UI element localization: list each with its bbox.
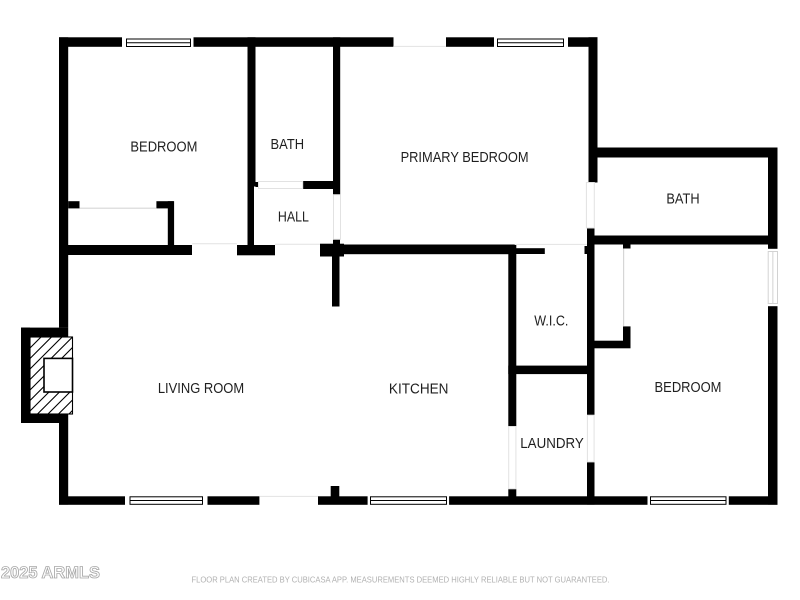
svg-text:LIVING ROOM: LIVING ROOM <box>158 381 244 397</box>
svg-text:BATH: BATH <box>271 137 305 153</box>
svg-text:HALL: HALL <box>278 210 309 226</box>
svg-text:LAUNDRY: LAUNDRY <box>520 436 584 452</box>
svg-text:W.I.C.: W.I.C. <box>534 314 568 330</box>
svg-text:KITCHEN: KITCHEN <box>389 382 449 398</box>
svg-text:BEDROOM: BEDROOM <box>655 380 722 396</box>
svg-text:BATH: BATH <box>666 191 699 207</box>
svg-text:BEDROOM: BEDROOM <box>130 139 197 155</box>
svg-text:PRIMARY BEDROOM: PRIMARY BEDROOM <box>401 150 529 166</box>
svg-text:FLOOR PLAN CREATED BY CUBICASA: FLOOR PLAN CREATED BY CUBICASA APP. MEAS… <box>192 575 610 585</box>
svg-text:2025 ARMLS: 2025 ARMLS <box>1 564 100 582</box>
